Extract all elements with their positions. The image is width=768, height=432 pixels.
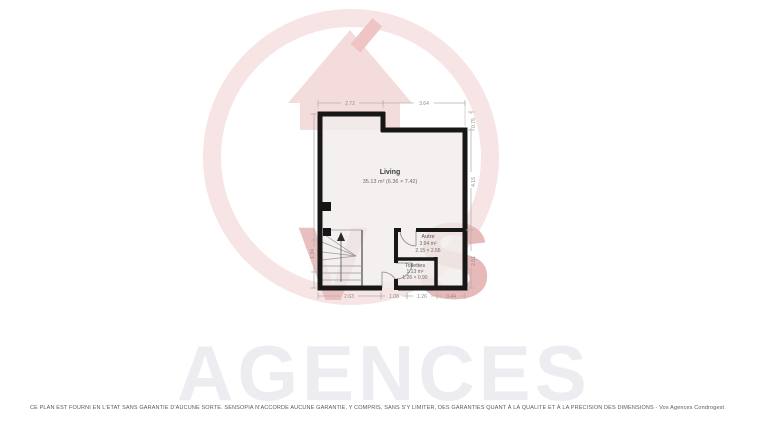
dim-top-left: 2.72 [345,101,355,107]
autre-room-area: 3.94 m² [420,241,437,247]
dim-right-2: 4.15 [471,177,477,187]
autre-room-name: Autre [421,234,434,240]
dim-right-1: 0.75 [471,118,477,128]
logo-house-roof [288,30,412,103]
dim-left-1: 1.34 [310,249,316,259]
dim-bottom-1: 2.63 [344,294,354,300]
dim-bottom-4: 0.44 [446,294,456,300]
footer-disclaimer: CE PLAN EST FOURNI EN L'ETAT SANS GARANT… [30,405,724,411]
autre-room-size: 2.15 × 2.56 [415,248,440,254]
dim-bottom-2: 1.08 [389,294,399,300]
floorplan-canvas: V s [0,0,768,432]
dim-top-right: 3.64 [419,101,429,107]
dim-bottom-3: 1.26 [417,294,427,300]
dim-right-3: 2.51 [471,256,477,266]
toilettes-room-size: 1.26 × 0.90 [402,275,427,281]
floor-area [320,114,465,288]
stair-newel-post [323,228,331,236]
living-room-area: 35.13 m² (6.36 × 7.42) [363,179,418,185]
floorplan-drawing: 2.72 3.64 2.63 1.08 1.26 0.44 [310,100,477,300]
living-room-name: Living [380,169,401,176]
wall-pier [320,202,331,211]
